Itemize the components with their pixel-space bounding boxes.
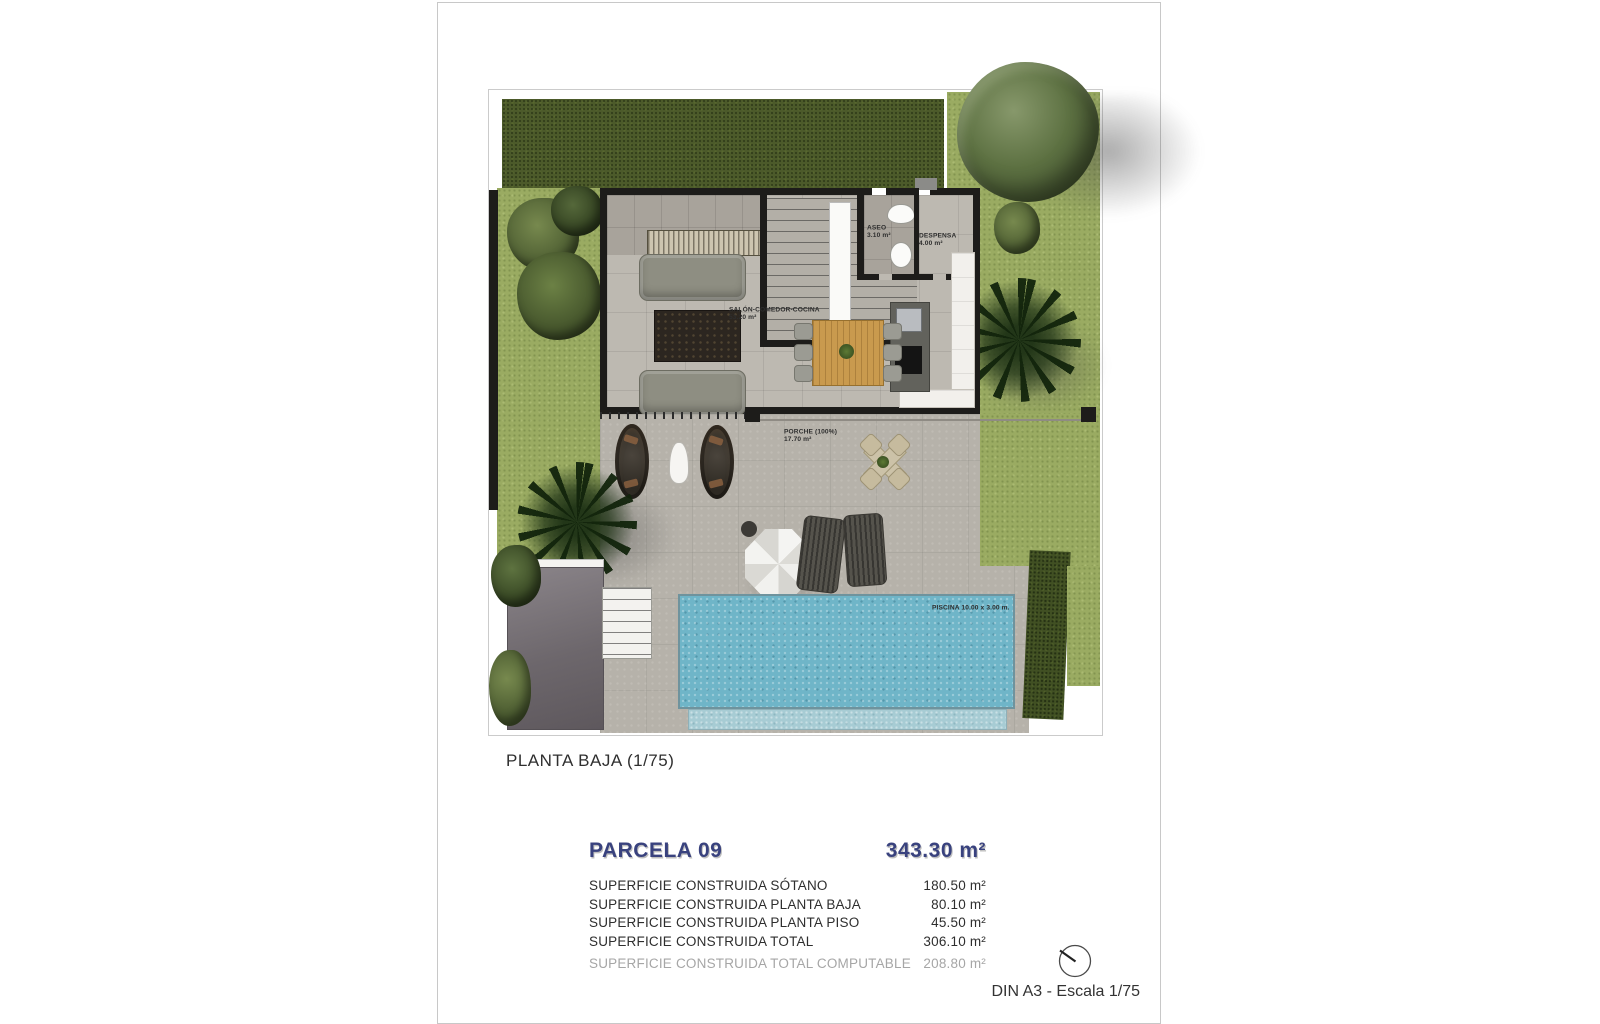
dining-chair <box>794 365 813 382</box>
pool-label: PISCINA 10.00 x 3.00 m. <box>932 604 1010 612</box>
porch-pillar <box>745 407 760 422</box>
parasol-pole <box>741 521 757 537</box>
right-lawn-strip <box>980 414 1100 566</box>
dining-chair <box>883 344 902 361</box>
lawn-corner <box>1067 566 1100 686</box>
summary-row-computable: SUPERFICIE CONSTRUIDA TOTAL COMPUTABLE 2… <box>589 955 986 974</box>
table-plant <box>839 344 854 359</box>
screenshot-canvas: ASEO3.10 m² DESPENSA4.00 m² <box>0 0 1600 1024</box>
pool-shallow-deck <box>688 709 1007 730</box>
sofa <box>639 370 746 416</box>
porch-line <box>747 419 1092 421</box>
bush <box>517 252 601 340</box>
sink <box>890 242 912 268</box>
door-opening <box>933 274 946 280</box>
summary-row: SUPERFICIE CONSTRUIDA PLANTA PISO 45.50 … <box>589 914 986 933</box>
room-label-aseo: ASEO3.10 m² <box>867 224 891 240</box>
aseo-wall <box>857 188 864 280</box>
toilet <box>887 204 915 224</box>
terrace-table-plant <box>877 456 889 468</box>
dining-chair <box>883 323 902 340</box>
porch-pillar <box>1081 407 1096 422</box>
room-label-despensa: DESPENSA4.00 m² <box>919 232 956 248</box>
door-opening <box>872 188 886 195</box>
porch-armchair <box>700 425 734 499</box>
aseo-despensa-wall <box>914 188 919 274</box>
summary-block: PARCELA 09 343.30 m² SUPERFICIE CONSTRUI… <box>589 839 986 974</box>
sofa <box>639 254 746 301</box>
back-garden-lawn <box>502 99 944 188</box>
summary-rows: SUPERFICIE CONSTRUIDA SÓTANO 180.50 m² S… <box>589 877 986 974</box>
dining-chair <box>794 344 813 361</box>
room-label-salon: SALÓN-COMEDOR-COCINA53.20 m² <box>729 306 820 322</box>
exterior-stairs <box>602 587 652 659</box>
kitchen-counter <box>951 252 975 402</box>
sideboard <box>647 230 764 256</box>
site-plan: ASEO3.10 m² DESPENSA4.00 m² <box>488 89 1103 736</box>
bush <box>489 650 531 726</box>
boundary-wall <box>489 190 498 510</box>
sheet-footer: DIN A3 - Escala 1/75 <box>991 983 1140 1001</box>
sun-lounger <box>843 513 888 588</box>
bush <box>994 202 1040 254</box>
north-indicator-icon <box>1056 942 1094 980</box>
plan-title: PLANTA BAJA (1/75) <box>506 751 674 771</box>
bush <box>491 545 541 607</box>
room-label-porche: PORCHE (100%)17.70 m² <box>784 428 837 444</box>
door-opening <box>879 274 892 280</box>
dining-chair <box>794 323 813 340</box>
hedge <box>1022 550 1070 720</box>
parcel-total-area: 343.30 m² <box>886 839 986 863</box>
summary-row: SUPERFICIE CONSTRUIDA TOTAL 306.10 m² <box>589 933 986 952</box>
bush <box>551 186 603 236</box>
summary-header: PARCELA 09 343.30 m² <box>589 839 986 863</box>
porch-edge-dashes <box>600 412 747 419</box>
parcel-title: PARCELA 09 <box>589 839 722 863</box>
stair-wall <box>760 188 767 347</box>
drawing-sheet: ASEO3.10 m² DESPENSA4.00 m² <box>437 2 1161 1024</box>
summary-row: SUPERFICIE CONSTRUIDA SÓTANO 180.50 m² <box>589 877 986 896</box>
side-table <box>669 442 689 484</box>
coffee-table-rug <box>654 310 741 362</box>
summary-row: SUPERFICIE CONSTRUIDA PLANTA BAJA 80.10 … <box>589 896 986 915</box>
dining-chair <box>883 365 902 382</box>
